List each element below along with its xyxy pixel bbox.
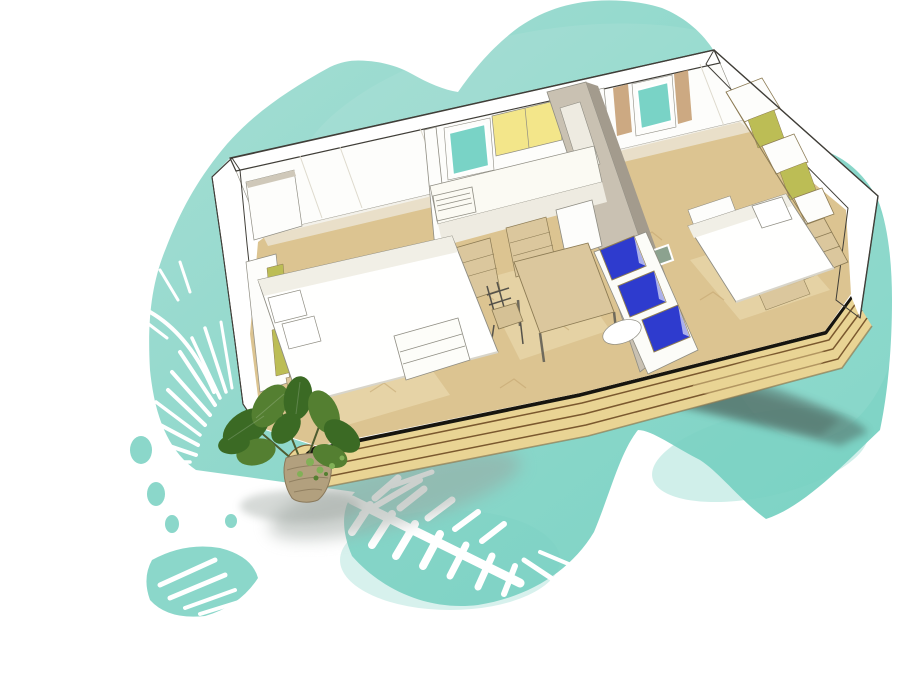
teal-speck (165, 515, 179, 533)
mobile-home-floorplan-illustration (0, 0, 900, 675)
illustration-canvas (0, 0, 900, 675)
teal-speck (130, 436, 152, 464)
teal-speck (147, 482, 165, 506)
bedroom-right-window (637, 82, 672, 129)
kitchen-window (449, 124, 489, 175)
teal-speck (225, 514, 237, 528)
